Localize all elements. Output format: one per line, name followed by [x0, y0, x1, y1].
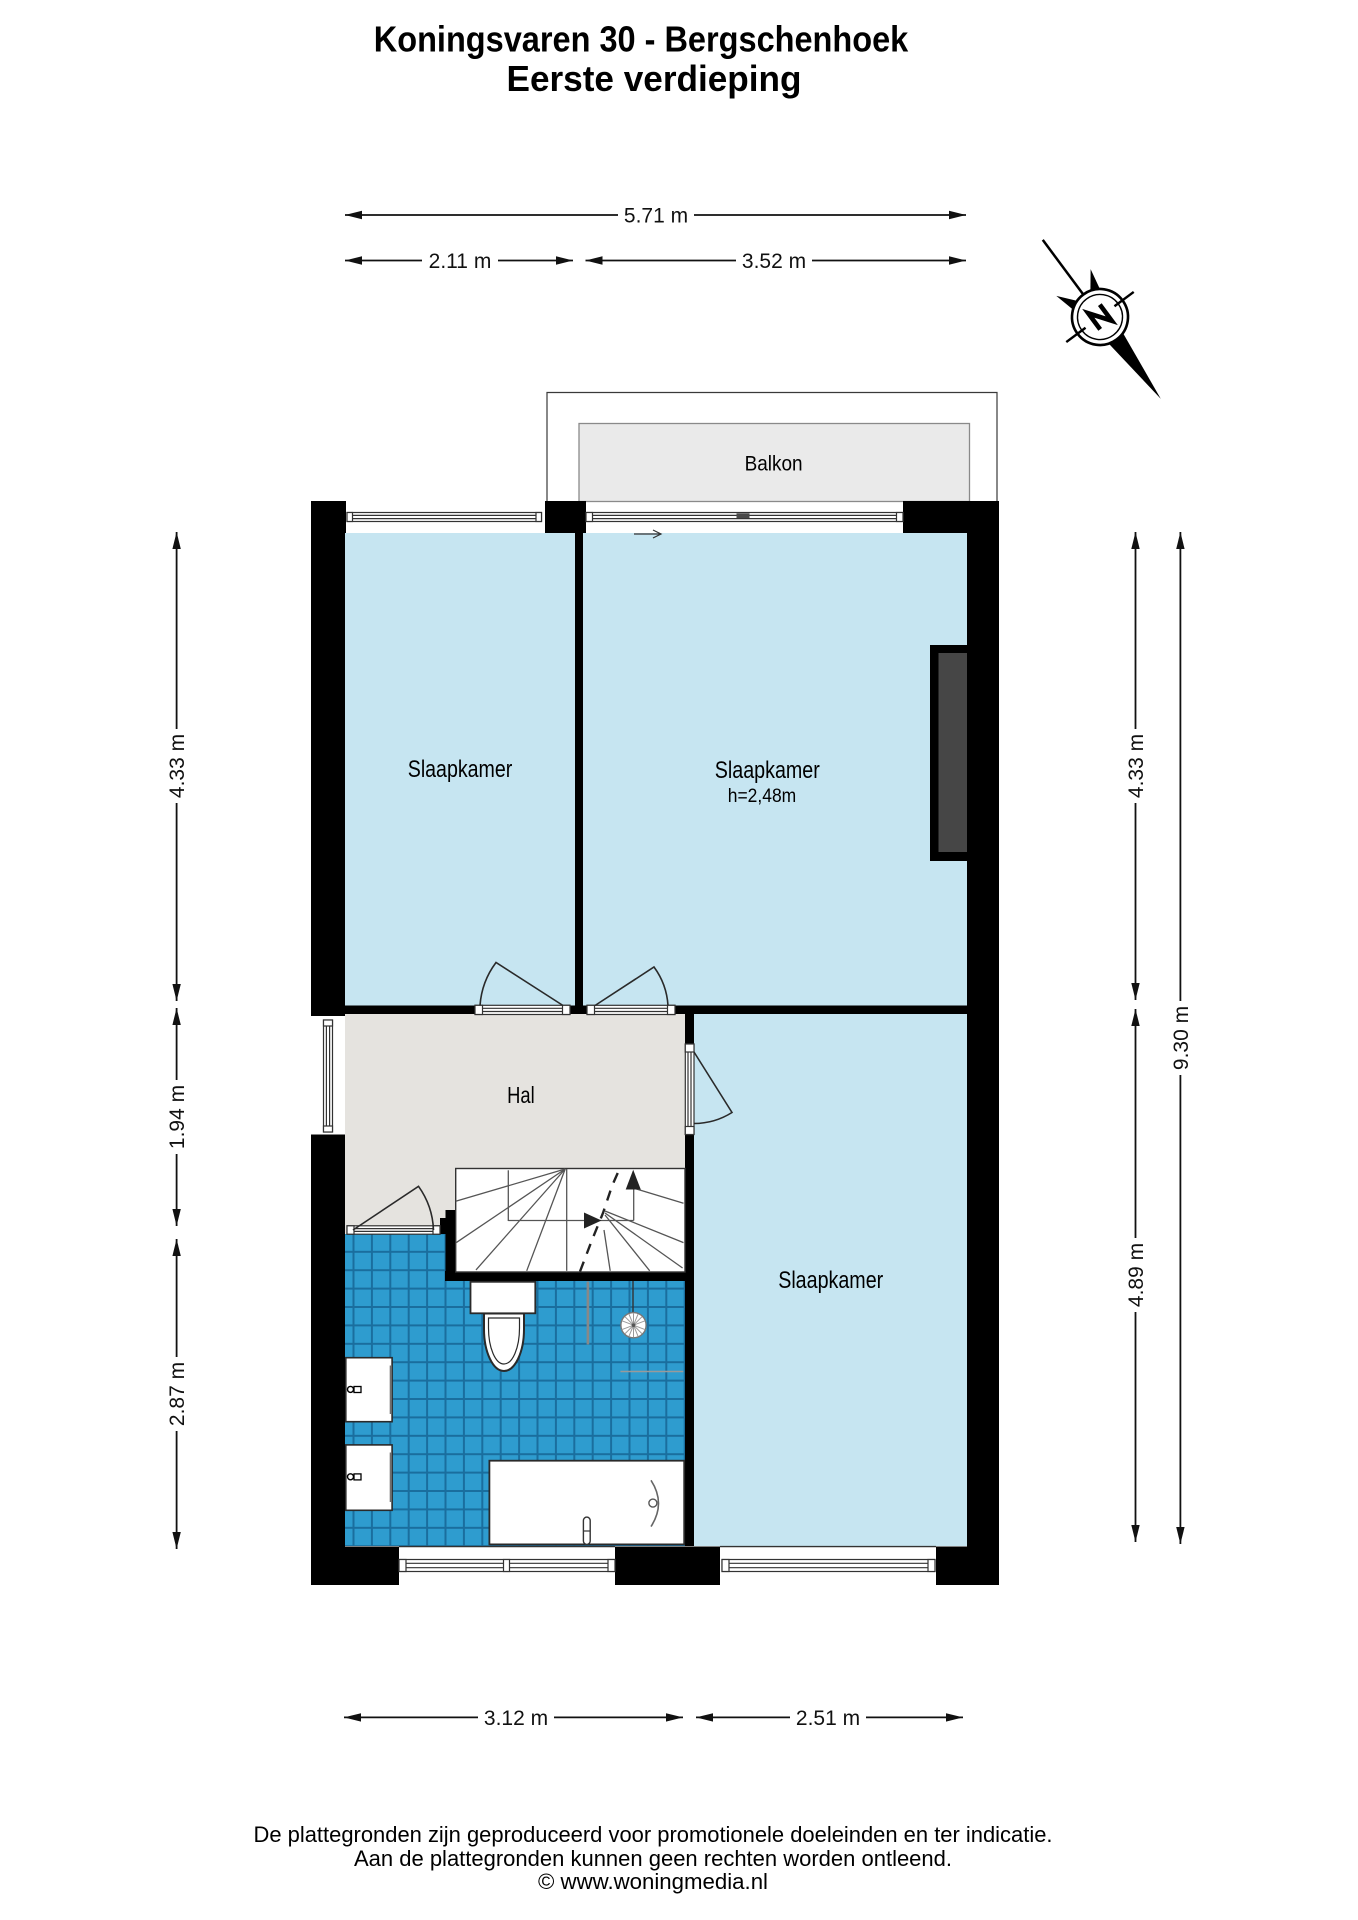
svg-text:Slaapkamer: Slaapkamer: [778, 1267, 883, 1294]
svg-text:2.51 m: 2.51 m: [796, 1707, 860, 1730]
svg-text:3.12 m: 3.12 m: [484, 1707, 548, 1730]
svg-text:2.11 m: 2.11 m: [429, 250, 492, 273]
svg-text:3.52 m: 3.52 m: [742, 250, 806, 273]
svg-text:Eerste verdieping: Eerste verdieping: [507, 58, 802, 99]
svg-text:Slaapkamer: Slaapkamer: [715, 757, 820, 784]
svg-text:De plattegronden zijn geproduc: De plattegronden zijn geproduceerd voor …: [254, 1822, 1053, 1847]
svg-text:Hal: Hal: [507, 1082, 535, 1108]
svg-text:Aan de plattegronden kunnen ge: Aan de plattegronden kunnen geen rechten…: [354, 1846, 952, 1871]
svg-text:h=2,48m: h=2,48m: [728, 786, 797, 807]
svg-text:Slaapkamer: Slaapkamer: [408, 756, 513, 783]
svg-text:4.33 m: 4.33 m: [166, 734, 189, 798]
svg-text:5.71 m: 5.71 m: [624, 205, 688, 228]
svg-text:Koningsvaren 30 - Bergschenhoe: Koningsvaren 30 - Bergschenhoek: [374, 19, 909, 60]
svg-text:2.87 m: 2.87 m: [166, 1362, 189, 1426]
svg-text:4.33 m: 4.33 m: [1125, 734, 1148, 798]
svg-text:1.94 m: 1.94 m: [166, 1085, 189, 1149]
svg-text:Balkon: Balkon: [745, 451, 803, 475]
svg-text:© www.woningmedia.nl: © www.woningmedia.nl: [538, 1869, 768, 1894]
svg-text:4.89 m: 4.89 m: [1125, 1243, 1148, 1307]
svg-text:9.30 m: 9.30 m: [1170, 1006, 1193, 1070]
